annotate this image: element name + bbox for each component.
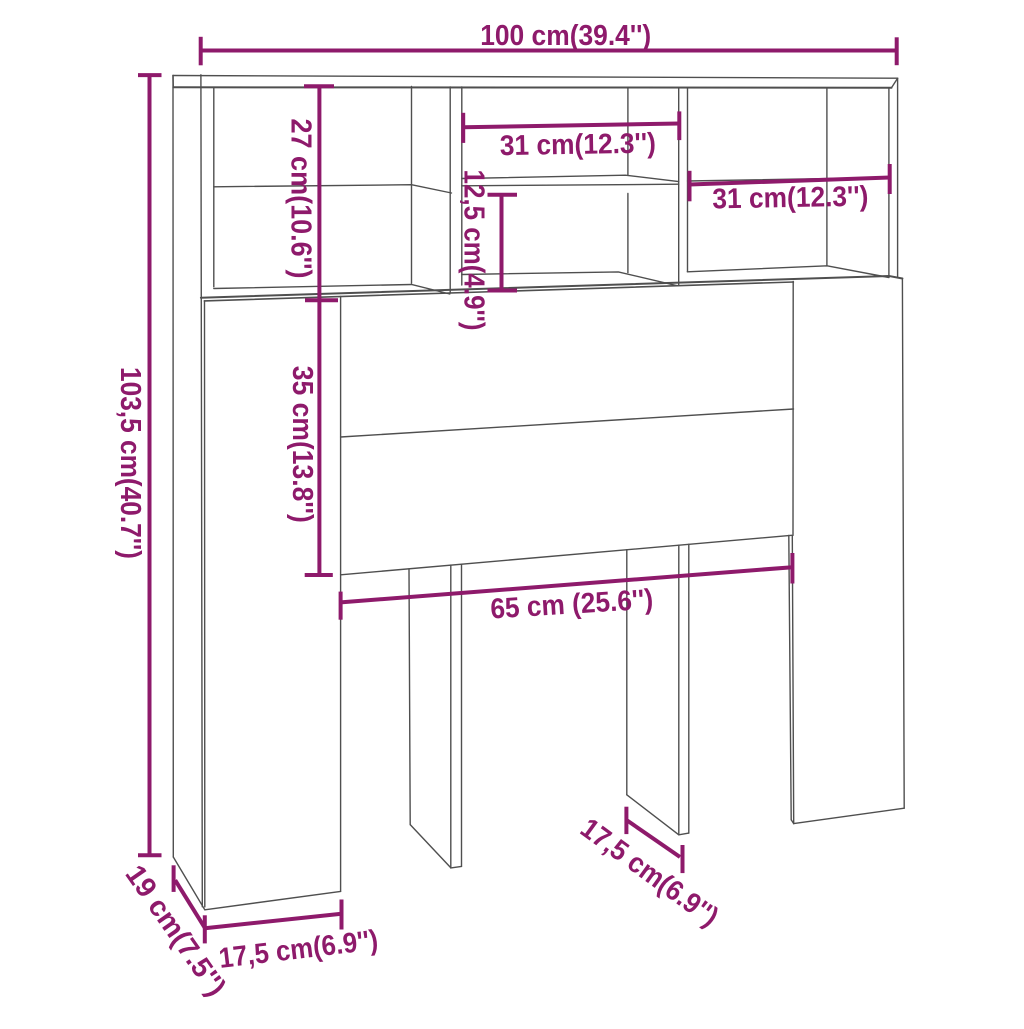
- svg-text:103,5 cm(40.7''): 103,5 cm(40.7''): [114, 367, 146, 559]
- svg-text:31 cm(12.3''): 31 cm(12.3''): [500, 127, 657, 162]
- svg-text:35 cm(13.8''): 35 cm(13.8''): [286, 366, 318, 523]
- svg-text:100 cm(39.4''): 100 cm(39.4''): [480, 20, 651, 52]
- svg-text:12,5 cm(4.9''): 12,5 cm(4.9''): [458, 170, 490, 331]
- svg-text:27 cm(10.6''): 27 cm(10.6''): [285, 119, 317, 279]
- svg-text:31 cm(12.3''): 31 cm(12.3''): [712, 181, 869, 216]
